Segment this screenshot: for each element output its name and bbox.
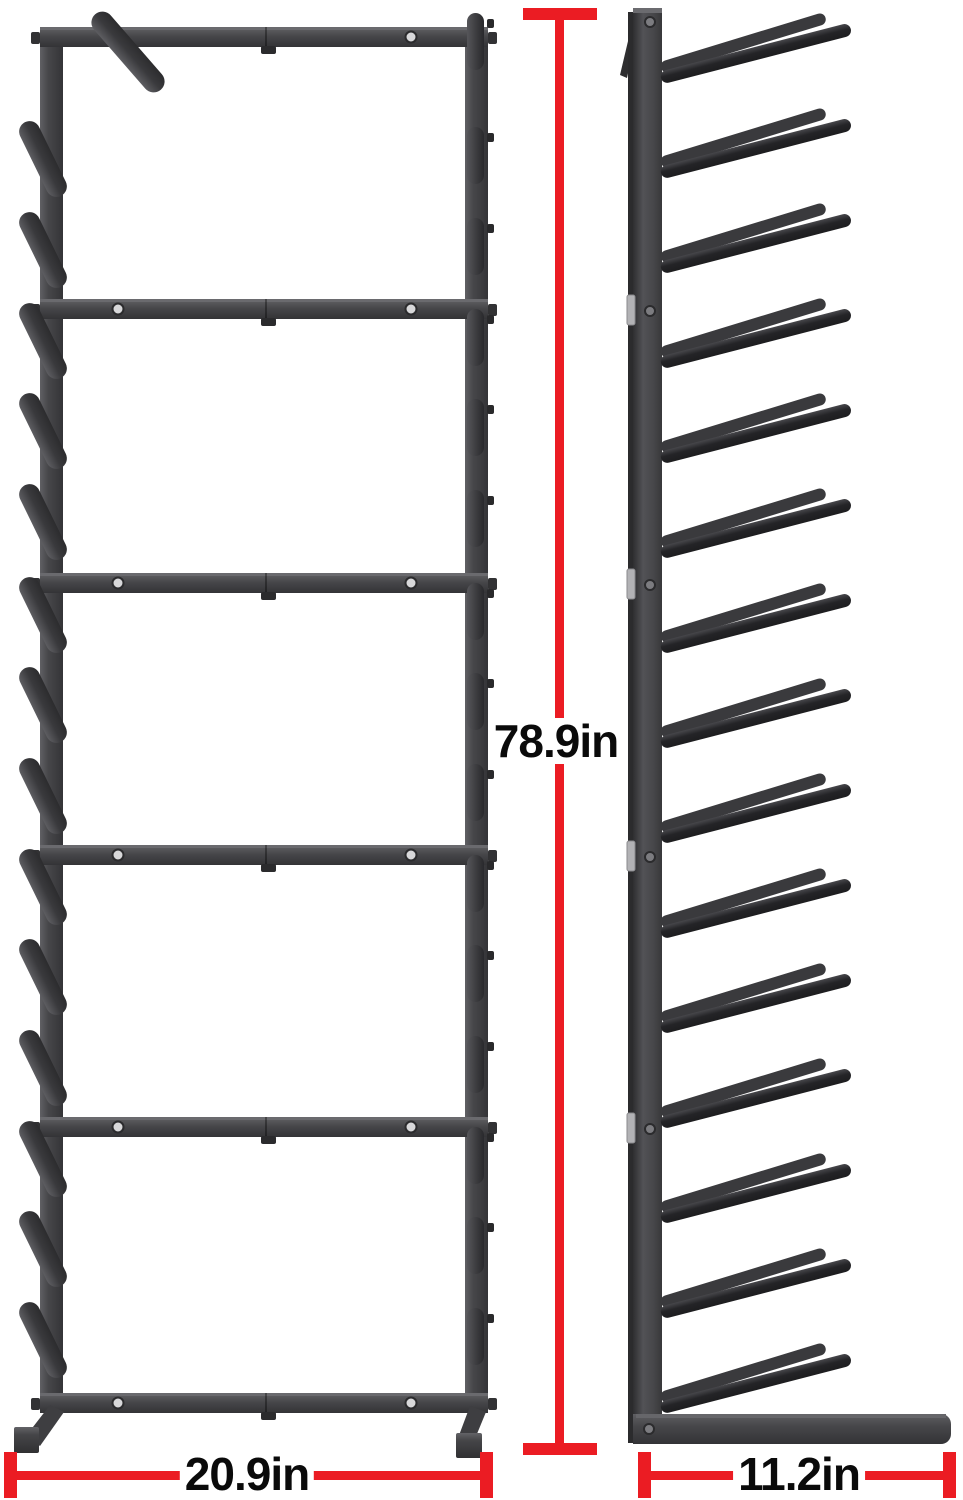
center-joint-tab	[261, 864, 276, 872]
right-peg-bolt	[487, 1223, 494, 1232]
center-joint-tab	[261, 592, 276, 600]
right-bolt-nub	[488, 32, 497, 44]
crossbar-top-edge	[40, 845, 488, 848]
crossbar-top-edge	[40, 1393, 488, 1396]
screw-hole	[406, 32, 417, 43]
height-dimension-label: 78.9in	[489, 718, 623, 764]
joint-connector	[627, 841, 635, 871]
joint-connector	[627, 1113, 635, 1143]
foot-screw	[644, 1424, 654, 1434]
right-peg-bolt	[487, 951, 494, 960]
right-peg	[467, 764, 484, 821]
right-peg-bolt	[487, 19, 494, 28]
post-screw	[645, 17, 655, 27]
screw-hole	[113, 1122, 124, 1133]
right-peg	[467, 490, 484, 547]
center-joint-tab	[261, 318, 276, 326]
right-peg	[467, 1036, 484, 1093]
right-peg-bolt	[487, 1042, 494, 1051]
product-dimension-diagram: 78.9in 20.9in 11.2in	[0, 0, 963, 1500]
center-joint-tab	[261, 46, 276, 54]
right-bolt-nub	[488, 304, 497, 316]
joint-connector	[627, 295, 635, 325]
base-foot-top-edge	[636, 1414, 946, 1418]
left-peg	[87, 7, 169, 97]
joint-connector	[627, 569, 635, 599]
right-peg-bolt	[487, 679, 494, 688]
screw-hole	[406, 850, 417, 861]
right-peg	[467, 945, 484, 1002]
crossbar-center-seam	[265, 573, 267, 593]
right-bolt-nub	[488, 850, 497, 862]
right-peg	[467, 583, 484, 640]
right-cap	[480, 1452, 493, 1498]
right-peg	[467, 13, 484, 70]
right-bolt-nub	[488, 578, 497, 590]
screw-hole	[113, 578, 124, 589]
post-top-edge	[633, 8, 662, 13]
base-foot-left	[633, 1414, 693, 1444]
right-peg	[467, 855, 484, 912]
rack-line-drawing	[0, 0, 963, 1500]
right-bolt-nub	[488, 1398, 497, 1410]
center-joint-tab	[261, 1412, 276, 1420]
right-peg-bolt	[487, 589, 494, 598]
screw-hole	[113, 1398, 124, 1409]
post-screw	[645, 852, 655, 862]
right-foot-pad	[456, 1433, 482, 1458]
crossbar-center-seam	[265, 1393, 267, 1413]
screw-hole	[113, 304, 124, 315]
right-peg	[467, 1217, 484, 1274]
post	[633, 8, 662, 1443]
crossbar-top-edge	[40, 299, 488, 302]
width-dimension-label: 20.9in	[180, 1451, 314, 1497]
right-peg	[467, 218, 484, 275]
right-peg	[467, 673, 484, 730]
screw-hole	[406, 304, 417, 315]
depth-dimension-label: 11.2in	[733, 1451, 865, 1497]
right-peg-bolt	[487, 861, 494, 870]
right-cap	[943, 1452, 956, 1498]
post-screw	[645, 1124, 655, 1134]
right-peg-bolt	[487, 133, 494, 142]
right-peg-bolt	[487, 496, 494, 505]
right-peg-bolt	[487, 1133, 494, 1142]
crossbar-top-edge	[40, 573, 488, 576]
screw-hole	[406, 1398, 417, 1409]
crossbar-center-seam	[265, 845, 267, 865]
right-peg-bolt	[487, 224, 494, 233]
post-screw	[645, 306, 655, 316]
crossbar-center-seam	[265, 27, 267, 47]
crossbar-center-seam	[265, 1117, 267, 1137]
post-screw	[645, 580, 655, 590]
left-bolt-nub	[31, 32, 40, 44]
right-peg-bolt	[487, 1314, 494, 1323]
right-peg-bolt	[487, 315, 494, 324]
right-peg	[467, 1308, 484, 1365]
screw-hole	[406, 578, 417, 589]
left-bolt-nub	[31, 1398, 40, 1410]
screw-hole	[113, 850, 124, 861]
peg-body	[87, 7, 169, 97]
right-peg-bolt	[487, 405, 494, 414]
left-foot-pad	[14, 1427, 39, 1453]
right-peg	[467, 127, 484, 184]
bottom-cap	[523, 1443, 597, 1455]
front-view-rack	[14, 7, 497, 1458]
crossbar-center-seam	[265, 299, 267, 319]
center-joint-tab	[261, 1136, 276, 1144]
side-view-rack	[620, 8, 951, 1444]
right-peg-bolt	[487, 770, 494, 779]
crossbar-top-edge	[40, 1117, 488, 1120]
right-peg	[467, 309, 484, 366]
right-peg	[467, 1127, 484, 1184]
right-bolt-nub	[488, 1122, 497, 1134]
screw-hole	[406, 1122, 417, 1133]
right-peg	[467, 399, 484, 456]
